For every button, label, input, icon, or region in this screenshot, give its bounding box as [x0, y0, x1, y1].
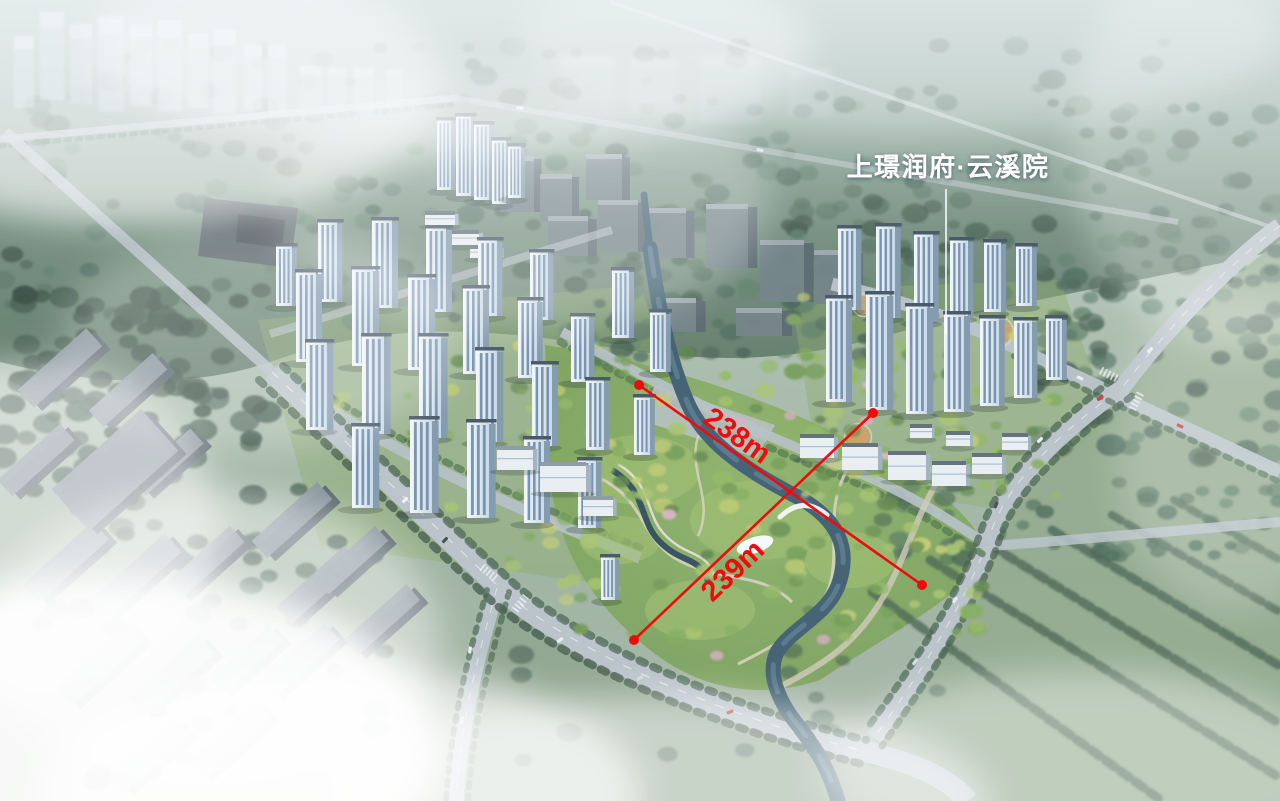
dimension-endpoint-dot [868, 408, 878, 418]
project-title-label: 上璟润府·云溪院 [847, 152, 1050, 182]
top-haze [0, 0, 1280, 235]
aerial-scene: 上璟润府·云溪院 238m 239m [0, 0, 1280, 801]
dimension-endpoint-dot [917, 580, 927, 590]
dimension-endpoint-dot [629, 635, 639, 645]
masterplan-rendering: 上璟润府·云溪院 238m 239m [0, 0, 1280, 801]
dimension-endpoint-dot [634, 380, 644, 390]
